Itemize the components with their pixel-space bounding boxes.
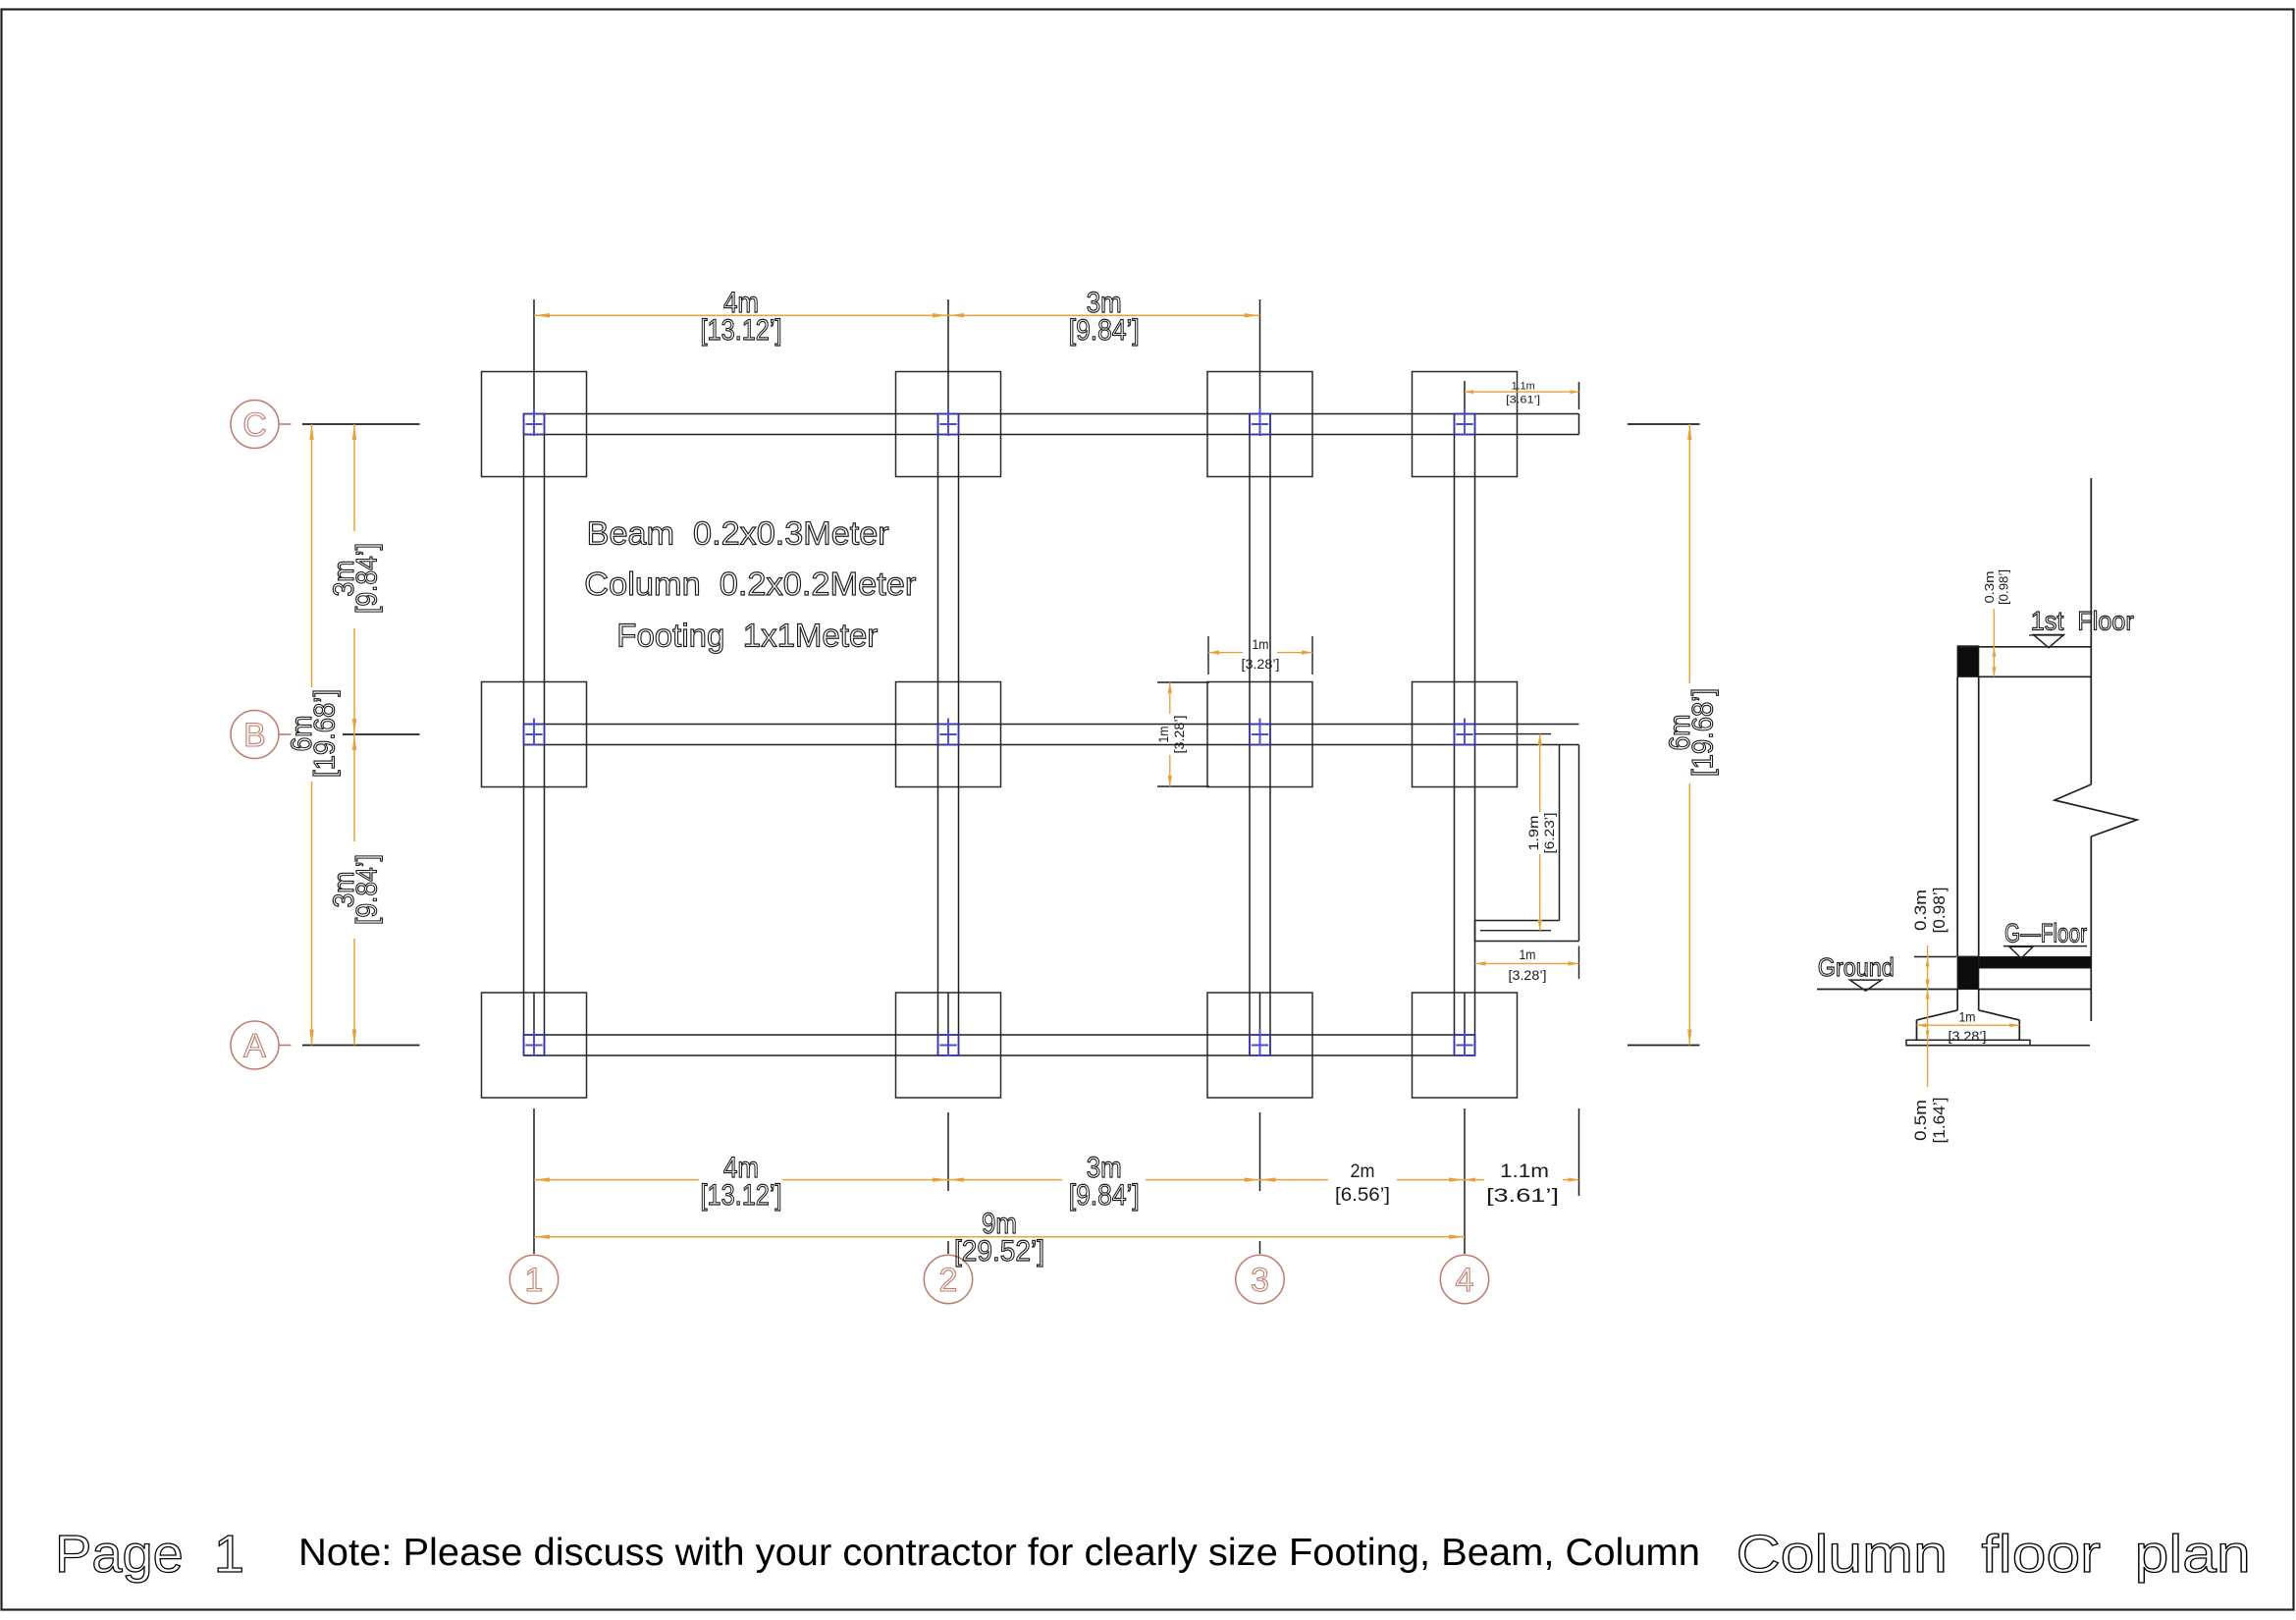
svg-text:Column 0.2x0.2Meter: Column 0.2x0.2Meter [584,566,916,602]
svg-text:Ground: Ground [1818,952,1895,982]
svg-text:[19.68’]: [19.68’] [1687,688,1720,777]
svg-text:[29.52’]: [29.52’] [954,1235,1044,1268]
svg-text:A: A [243,1028,266,1065]
svg-text:[13.12’]: [13.12’] [701,1179,782,1212]
svg-text:C: C [242,406,267,444]
svg-text:1.1m: 1.1m [1500,1161,1549,1182]
svg-text:4: 4 [1456,1262,1474,1299]
svg-text:0.5m: 0.5m [1911,1100,1930,1141]
svg-text:1.1m: 1.1m [1512,381,1535,393]
svg-text:[13.12’]: [13.12’] [701,314,782,347]
svg-text:[3.28’]: [3.28’] [1949,1028,1987,1044]
svg-text:[1.64’]: [1.64’] [1930,1098,1949,1144]
svg-text:[3.61’]: [3.61’] [1506,395,1540,406]
svg-text:1m: 1m [1155,727,1171,743]
svg-text:2m: 2m [1351,1161,1375,1182]
svg-text:0.3m: 0.3m [1982,571,1997,604]
svg-text:3: 3 [1251,1262,1269,1299]
svg-text:1: 1 [525,1262,544,1299]
svg-text:[3.28’]: [3.28’] [1171,716,1187,754]
svg-text:[9.84’]: [9.84’] [351,854,384,925]
svg-text:Column floor plan: Column floor plan [1736,1525,2251,1584]
svg-text:[9.84’]: [9.84’] [1069,1179,1140,1212]
svg-text:Page 1: Page 1 [55,1525,244,1584]
svg-text:1.9m: 1.9m [1525,816,1541,851]
svg-text:[0.98’]: [0.98’] [1997,569,2011,605]
svg-text:1m: 1m [1959,1009,1976,1025]
svg-text:[3.28’]: [3.28’] [1242,656,1280,672]
svg-text:Footing 1x1Meter: Footing 1x1Meter [616,617,878,653]
svg-text:1m: 1m [1520,946,1536,962]
svg-text:B: B [243,717,266,754]
svg-text:Note: Please discuss with your: Note: Please discuss with your contracto… [298,1532,1700,1574]
svg-text:[19.68’]: [19.68’] [309,689,342,778]
svg-text:1st Floor: 1st Floor [2031,606,2134,635]
svg-text:[9.84’]: [9.84’] [1069,314,1140,347]
svg-text:[6.56’]: [6.56’] [1335,1185,1390,1206]
svg-text:[0.98’]: [0.98’] [1930,888,1949,934]
svg-text:[6.23’]: [6.23’] [1541,813,1557,854]
svg-text:G—Floor: G—Floor [2004,919,2087,948]
svg-text:0.3m: 0.3m [1911,890,1930,931]
svg-text:[9.84’]: [9.84’] [351,543,384,614]
svg-text:1m: 1m [1253,636,1269,652]
svg-text:[3.28’]: [3.28’] [1509,967,1547,983]
svg-text:[3.61’]: [3.61’] [1486,1186,1559,1207]
svg-text:Beam 0.2x0.3Meter: Beam 0.2x0.3Meter [587,515,889,552]
